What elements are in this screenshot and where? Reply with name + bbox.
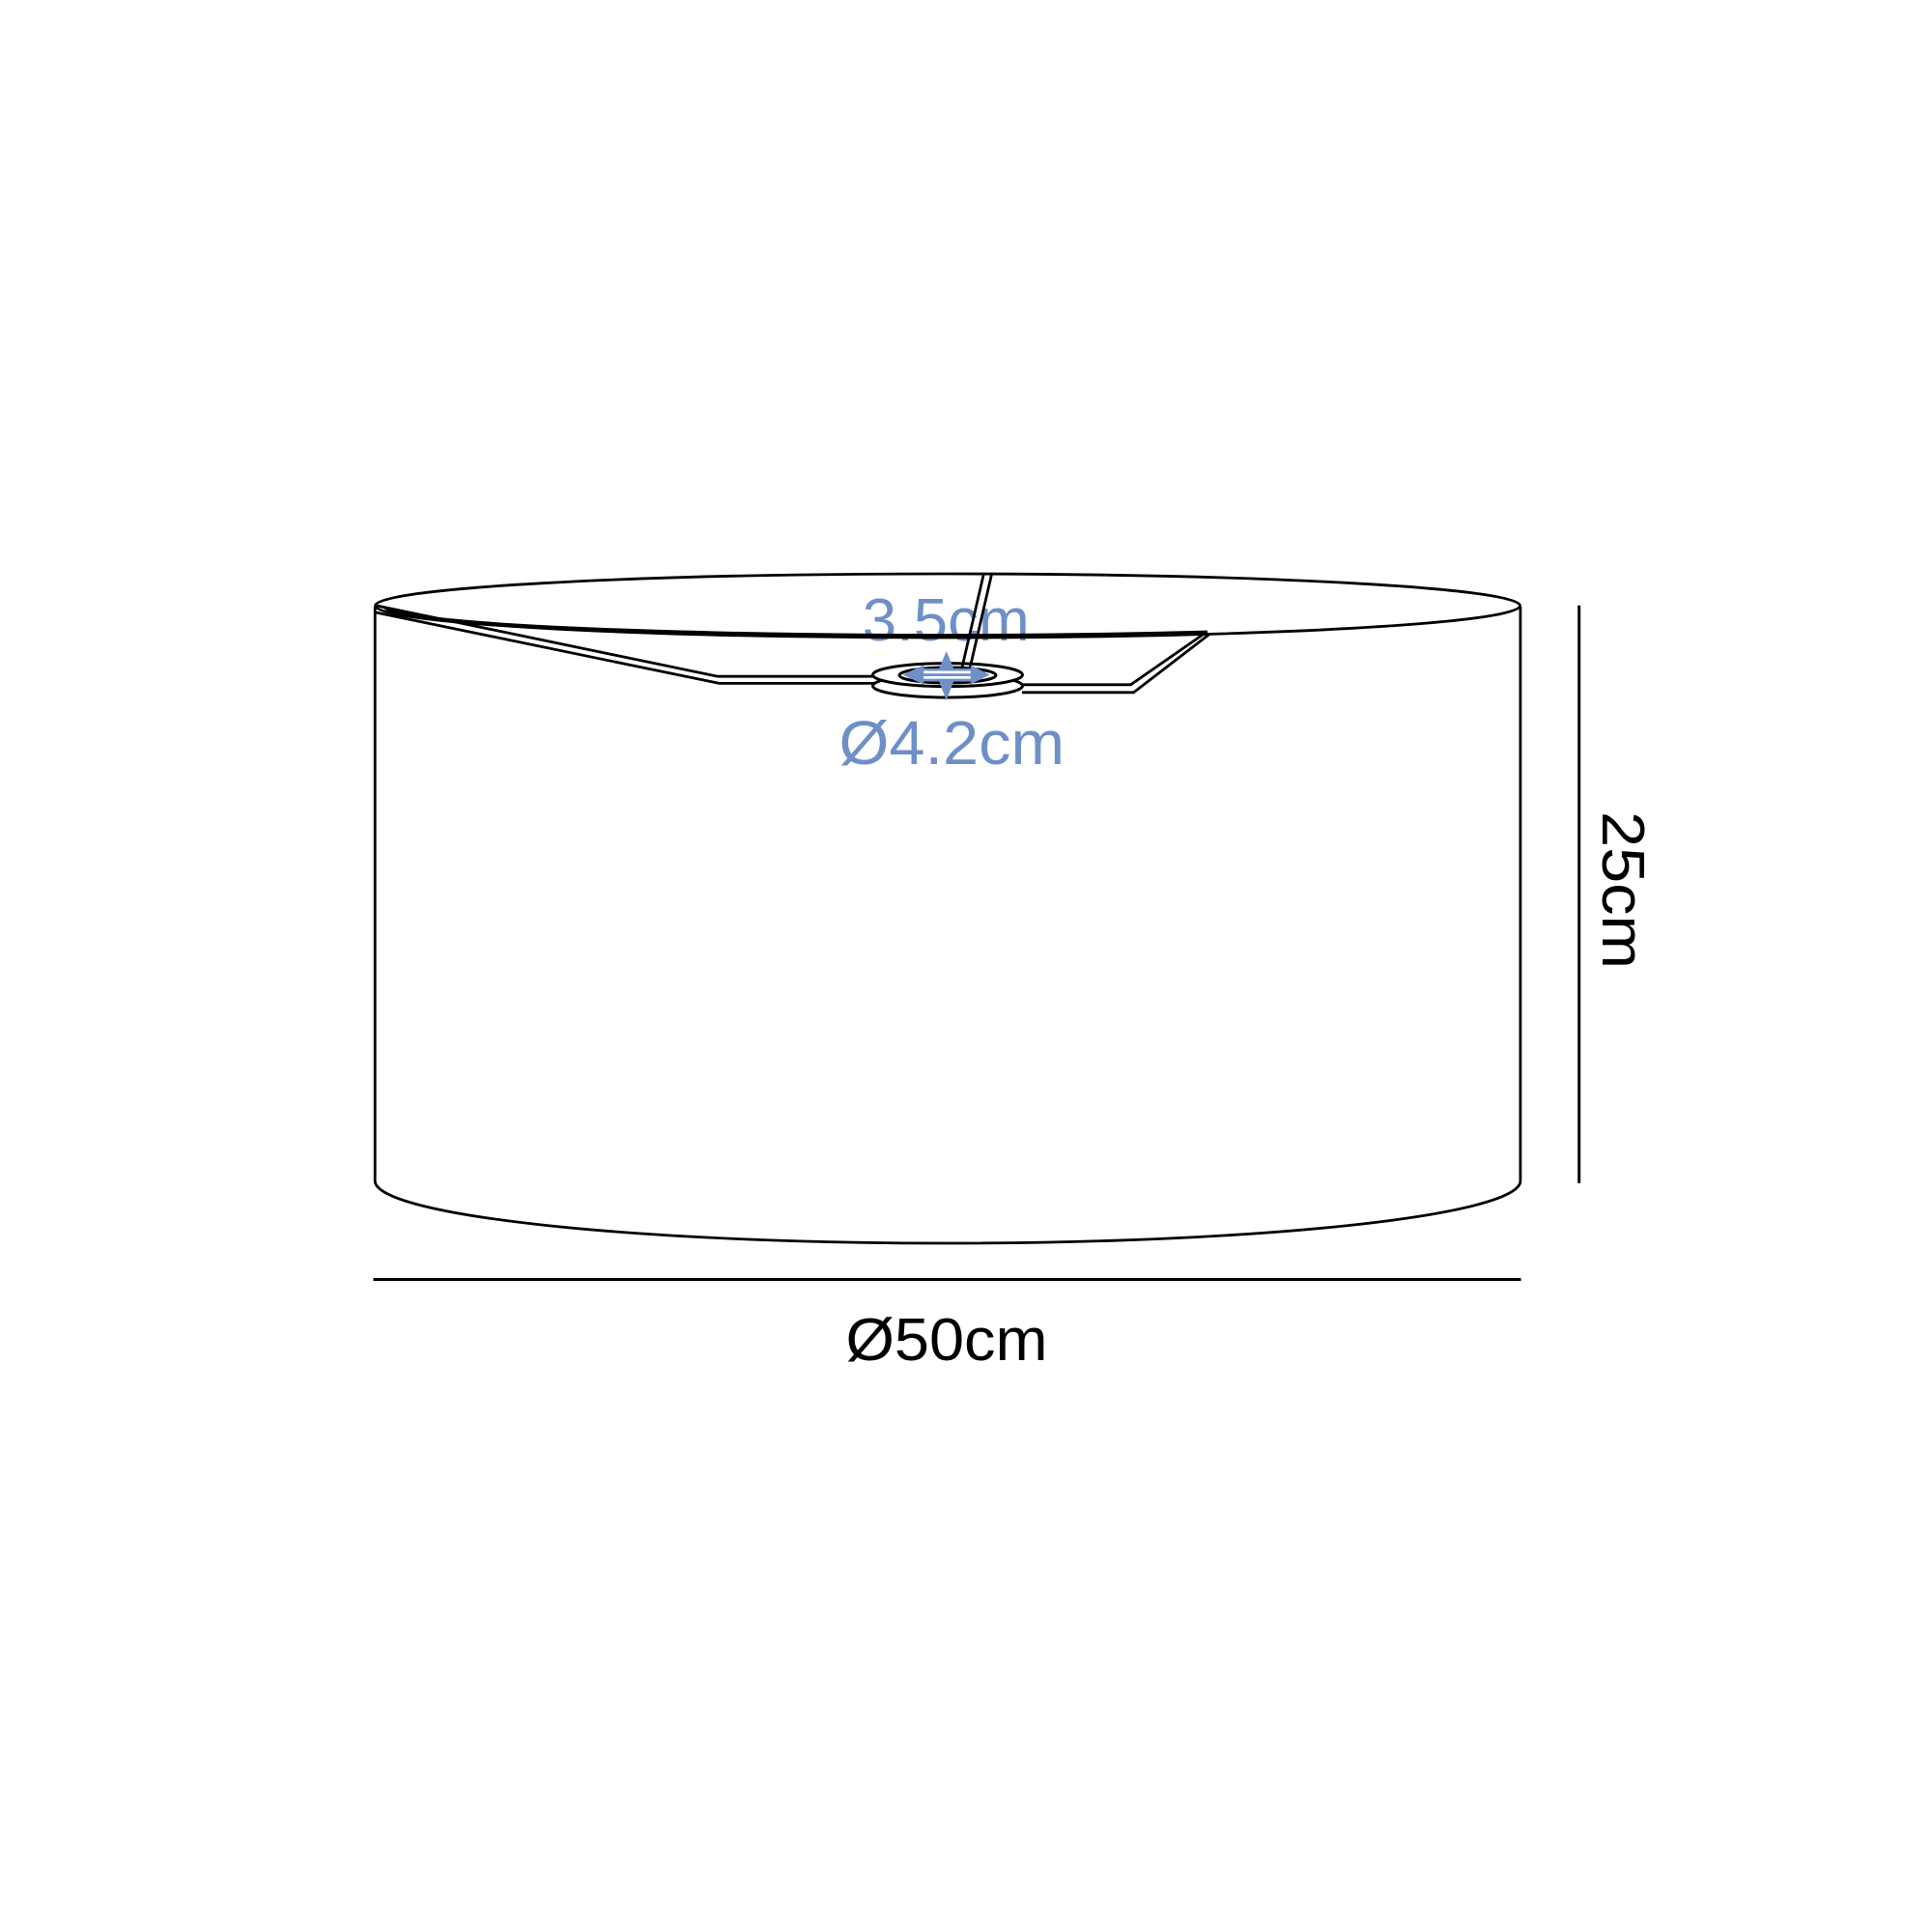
svg-text:Ø4.2cm: Ø4.2cm [839,708,1065,778]
svg-text:25cm: 25cm [1589,811,1656,969]
svg-text:3.5cm: 3.5cm [863,587,1030,654]
svg-text:Ø50cm: Ø50cm [846,1307,1048,1374]
